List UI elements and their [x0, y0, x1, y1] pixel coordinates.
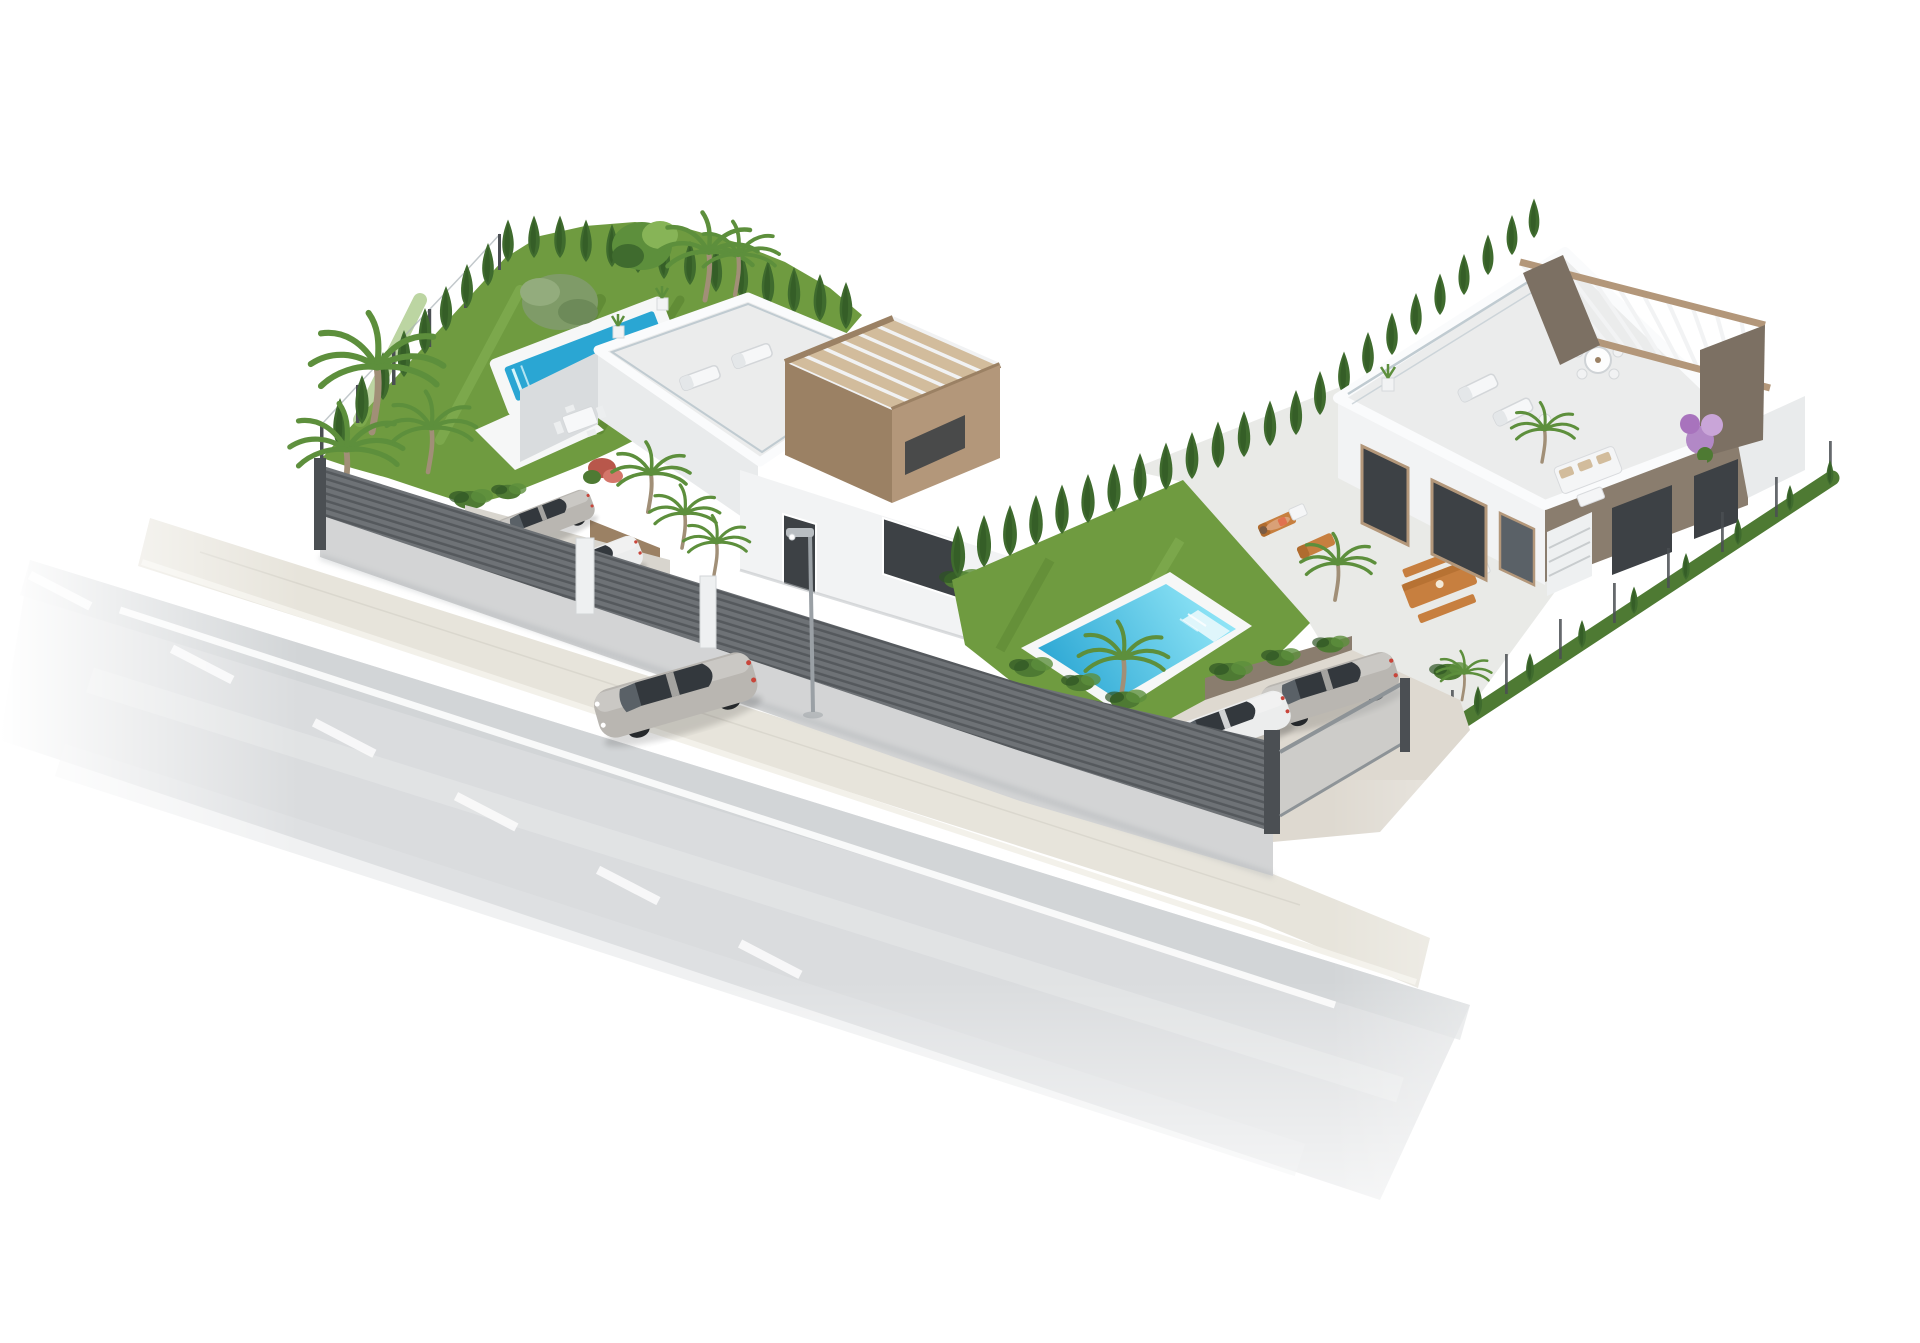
cypress-tree [1055, 485, 1068, 535]
cypress-tree [1029, 495, 1043, 545]
potted-plant [656, 286, 668, 310]
palm-tree [683, 516, 749, 576]
villa-render [0, 0, 1920, 1343]
potted-plant [612, 314, 624, 338]
cypress-tree [1081, 474, 1094, 523]
cypress-tree [1160, 443, 1173, 491]
cypress-tree [1434, 274, 1445, 316]
pergola-tower [785, 318, 1000, 503]
cypress-tree [1458, 254, 1469, 295]
render-canvas [0, 0, 1920, 1343]
gate-pillar [576, 538, 594, 614]
potted-plant [1381, 364, 1395, 391]
garden-bush [449, 489, 493, 509]
cypress-tree [1529, 199, 1540, 239]
fade-right [1330, 780, 1750, 1343]
lamp-base-shadow [803, 712, 823, 719]
lamp-light [789, 534, 795, 540]
cypress-tree [1134, 453, 1147, 501]
cypress-tree [1410, 293, 1421, 335]
cypress-tree [1003, 505, 1017, 556]
cypress-tree [1483, 235, 1494, 276]
fence-corner-post [314, 458, 326, 550]
cypress-tree [1107, 464, 1120, 513]
fence-end-post [1264, 730, 1280, 834]
gate-pillar [700, 576, 716, 648]
cypress-tree [1507, 215, 1518, 255]
cypress-tree [1386, 313, 1398, 356]
gate-post [1400, 678, 1410, 752]
cypress-tree [1362, 332, 1374, 375]
